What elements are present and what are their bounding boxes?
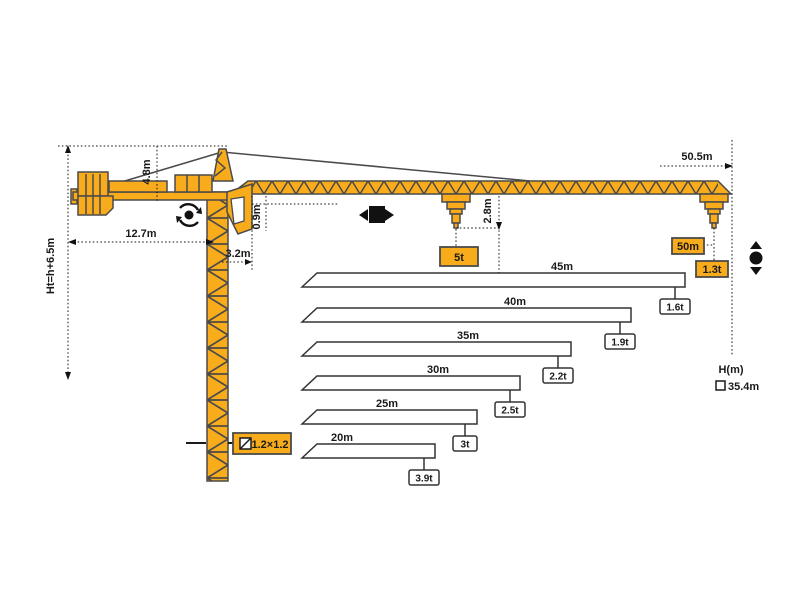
hook-block-upper	[705, 202, 723, 209]
crane-load-diagram-canvas: 1.2×1.2 Ht=h+6.5m 4.8m 12.7m 3.2m 0.9m 2…	[0, 0, 800, 600]
jib-length-bar	[302, 376, 520, 390]
trolley-frame	[442, 194, 470, 202]
total-height-label: Ht=h+6.5m	[45, 238, 57, 294]
trolley-hook-mid	[442, 194, 470, 228]
bar-length-label: 40m	[504, 296, 526, 308]
capacity-label: 1.6t	[666, 303, 684, 314]
tie-bar-jib	[222, 152, 530, 181]
capacity-label: 1.9t	[611, 338, 629, 349]
jib-length-bar	[302, 410, 477, 424]
mast-section-callout: 1.2×1.2	[233, 433, 291, 454]
hook-stem	[452, 214, 460, 223]
machinery-box-hoist	[109, 181, 167, 192]
crane-load-diagram-page: 1.2×1.2 Ht=h+6.5m 4.8m 12.7m 3.2m 0.9m 2…	[0, 0, 800, 600]
hook-block-upper	[447, 202, 465, 209]
slewing-icon	[176, 204, 202, 226]
jib-length-bar	[302, 308, 631, 322]
hoisting-icon	[750, 241, 763, 275]
arrow-down	[65, 372, 71, 380]
hook-tip	[454, 223, 458, 228]
hook-tip	[712, 223, 716, 228]
hook-height-checkbox	[716, 381, 725, 390]
jib-length-row: 45m1.6t	[302, 261, 690, 314]
counterweight-lower	[78, 196, 113, 215]
capacity-label: 3t	[461, 440, 471, 451]
trolley-travel-icon	[359, 206, 394, 223]
trolley-frame	[700, 194, 728, 202]
arrow-down	[496, 222, 502, 230]
capacity-label: 2.5t	[501, 406, 519, 417]
machinery-box-cabinet	[175, 175, 212, 192]
tip-drop-label: 2.8m	[482, 198, 494, 223]
load-chart: 45m1.6t40m1.9t35m2.2t30m2.5t25m3t20m3.9t	[302, 261, 690, 485]
bar-length-label: 20m	[331, 432, 353, 444]
tip-capacity-label: 1.3t	[703, 264, 722, 276]
jib-length-bar	[302, 273, 685, 287]
bar-length-label: 30m	[427, 364, 449, 376]
bar-length-label: 45m	[551, 261, 573, 273]
jib-foot-opening	[231, 197, 244, 224]
mast-lattice	[207, 192, 228, 481]
tip-radius-label: 50m	[677, 241, 699, 253]
hook-stem	[710, 214, 718, 223]
jib-lattice	[248, 181, 718, 194]
trolley-hook-tip	[700, 194, 728, 228]
capacity-label: 3.9t	[415, 474, 433, 485]
arrow-left	[68, 239, 76, 245]
max-radius-label: 50.5m	[681, 151, 712, 163]
jib-length-bar	[302, 444, 435, 458]
jib-length-row: 25m3t	[302, 398, 477, 451]
hook-height-value: 35.4m	[728, 381, 759, 393]
hook-height-axis-label: H(m)	[718, 364, 743, 376]
jib-clearance-label: 0.9m	[251, 204, 263, 229]
jib-length-row: 30m2.5t	[302, 364, 525, 417]
capacity-label: 2.2t	[549, 372, 567, 383]
counterjib-length-label: 12.7m	[125, 228, 156, 240]
jib-length-bar	[302, 342, 571, 356]
head-height-label: 4.8m	[141, 159, 153, 184]
slew-offset-label: 3.2m	[225, 248, 250, 260]
jib-length-row: 20m3.9t	[302, 432, 439, 485]
mast-section-label: 1.2×1.2	[251, 439, 288, 451]
bar-length-label: 35m	[457, 330, 479, 342]
bar-length-label: 25m	[376, 398, 398, 410]
max-capacity-label: 5t	[454, 252, 464, 264]
